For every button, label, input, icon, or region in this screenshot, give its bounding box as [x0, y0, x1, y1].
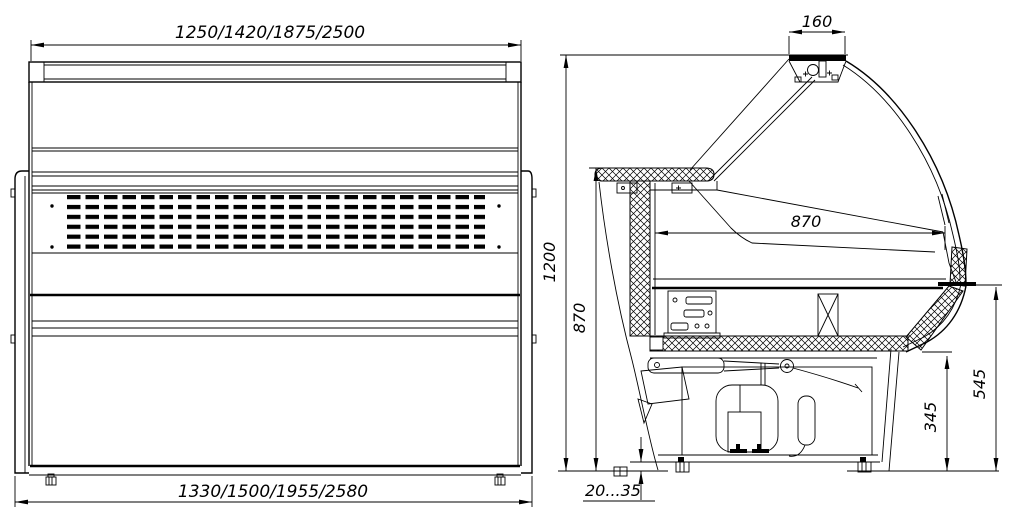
insulated-floor: [650, 247, 976, 352]
side-view: 160 1200 870: [540, 12, 1002, 501]
front-step: [938, 282, 976, 286]
left-end-panel: [11, 171, 29, 473]
canopy-width-label: 160: [802, 12, 833, 31]
display-depth-label: 870: [791, 212, 822, 231]
side-right-foot: [858, 457, 871, 472]
leg-adjust-dimension: 20...35: [583, 437, 656, 501]
front-shelf-height-dimension: 545: [970, 285, 1002, 471]
bumper-height-dimension: 345: [921, 352, 952, 471]
ventilation-grille: [50, 194, 500, 253]
screw-dot: [497, 204, 500, 207]
total-height-dimension: 1200: [540, 55, 848, 471]
rear-wall: [599, 181, 658, 470]
screw-dot: [497, 245, 500, 248]
front-shelf-height-label: 545: [970, 369, 989, 400]
leg-adjust-label: 20...35: [585, 481, 641, 500]
counter-height-dimension: 870: [570, 168, 606, 471]
screw-dot: [50, 245, 53, 248]
front-bottom-width-dimension: 1330/1500/1955/2580: [15, 476, 532, 507]
display-case-drawing: 1250/1420/1875/2500: [0, 0, 1013, 522]
machine-compartment: [614, 349, 899, 476]
front-left-foot: [46, 474, 56, 485]
bumper-height-label: 345: [921, 402, 940, 433]
canopy-side: [789, 55, 846, 82]
front-bottom-width-label: 1330/1500/1955/2580: [178, 482, 368, 502]
display-depth-dimension: 870: [655, 212, 945, 250]
display-deck: [650, 181, 956, 288]
drawing-canvas: 1250/1420/1875/2500: [0, 0, 1013, 522]
perforated-box: [664, 291, 720, 338]
side-left-foot: [676, 457, 689, 472]
canopy-front: [29, 62, 521, 82]
pivot-bolt: [781, 360, 794, 373]
front-right-foot: [495, 474, 505, 485]
canopy-width-dimension: 160: [789, 12, 845, 54]
front-top-width-dimension: 1250/1420/1875/2500: [31, 23, 521, 61]
front-view: 1250/1420/1875/2500: [11, 23, 536, 507]
front-body-outline: [29, 82, 521, 475]
support-brace: [818, 294, 838, 336]
lamp-holder: [819, 61, 826, 77]
right-end-panel: [521, 171, 536, 473]
screw-dot: [50, 204, 53, 207]
receiver: [798, 396, 815, 445]
front-top-width-label: 1250/1420/1875/2500: [175, 23, 365, 43]
counter-height-label: 870: [570, 303, 589, 334]
total-height-label: 1200: [540, 242, 559, 283]
compressor: [716, 385, 778, 452]
